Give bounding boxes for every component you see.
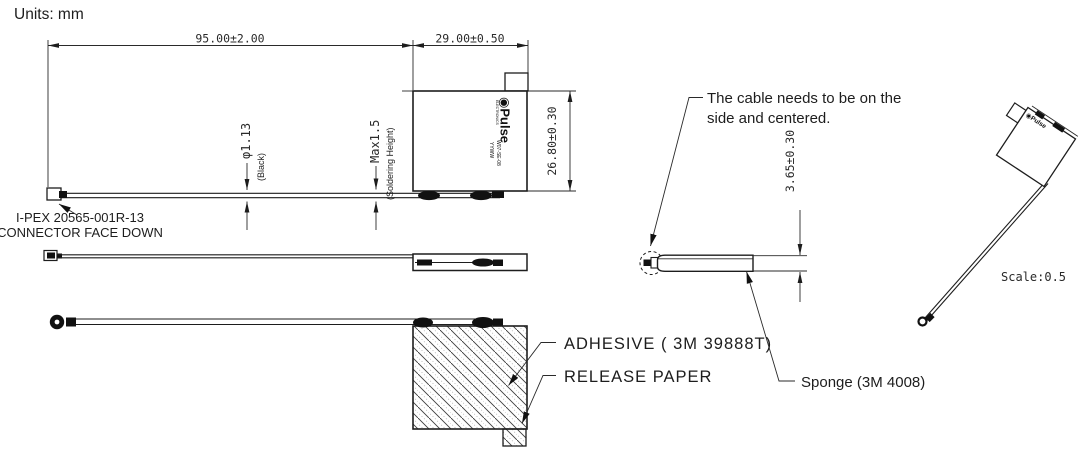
cable-note-leader [651, 98, 704, 247]
feed-tab [505, 73, 528, 91]
bottom-connector-boot [66, 318, 76, 327]
dim-cable-length: 95.00±2.00 [195, 32, 264, 46]
solder-blob-2 [470, 191, 492, 200]
sponge-leader [747, 272, 796, 382]
cable-note-line2: side and centered. [707, 110, 830, 127]
dim-body-height: 26.80±0.30 [545, 106, 559, 175]
bottom-connector-hole [55, 320, 60, 325]
sponge-label: Sponge (3M 4008) [801, 374, 925, 391]
side-solder-pad [493, 260, 503, 267]
connector-note-line2: CONNECTOR FACE DOWN [0, 225, 163, 240]
side-connector-contact [47, 253, 55, 259]
dim-body-width: 29.00±0.50 [435, 32, 504, 46]
dim-solder: Max1.5 [368, 120, 382, 163]
units-label: Units: mm [14, 6, 84, 23]
bottom-solder-pad [493, 319, 503, 326]
front-view: 95.00±2.00 29.00±0.50 26.80±0.30 ◉Pulse … [0, 32, 576, 241]
dim-cable-diameter: φ1.13 [239, 123, 253, 159]
adhesive-label: ADHESIVE ( 3M 39888T) [564, 335, 772, 353]
iso-cable-line1 [925, 181, 1046, 318]
adhesive-area [413, 326, 527, 429]
date-code: YYWW [488, 142, 494, 158]
technical-drawing: Units: mm 95.00±2.00 29.00±0.50 26.80±0.… [0, 0, 1082, 455]
side-view-row2 [44, 251, 527, 271]
cable-note-line1: The cable needs to be on the [707, 90, 901, 107]
ipex-connector [47, 188, 61, 200]
iso-view: ◉Pulse Scale:0.5 [919, 97, 1078, 325]
drawing-canvas: Units: mm 95.00±2.00 29.00±0.50 26.80±0.… [0, 0, 1082, 455]
iso-body-group: ◉Pulse [985, 97, 1078, 187]
bottom-solder-1 [413, 318, 433, 328]
iso-cable-line2 [927, 184, 1048, 321]
solder-blob-1 [418, 191, 440, 200]
scale-label: Scale:0.5 [1001, 270, 1066, 284]
pulse-logo-sub: ELECTRONICS [495, 100, 499, 126]
side-solder-1 [417, 260, 432, 266]
dim-solder-note: (Soldering Height) [385, 127, 395, 200]
solder-pad [492, 192, 504, 199]
side-solder-2 [472, 259, 494, 267]
sponge-assembly-body [658, 255, 754, 271]
iso-connector-ring [919, 318, 927, 326]
release-paper-label: RELEASE PAPER [564, 368, 712, 386]
bottom-view: ADHESIVE ( 3M 39888T) RELEASE PAPER [50, 315, 772, 446]
bottom-solder-2 [472, 317, 494, 328]
connector-note-line1: I-PEX 20565-001R-13 [16, 210, 144, 225]
part-code: W07-SE-08 [495, 140, 501, 166]
dim-thickness: 3.65±0.30 [783, 130, 797, 192]
sponge-view-connector [644, 260, 652, 267]
ipex-connector-contact [59, 191, 67, 198]
dim-cable-diameter-note: (Black) [256, 153, 266, 181]
release-paper-tab [503, 429, 526, 446]
